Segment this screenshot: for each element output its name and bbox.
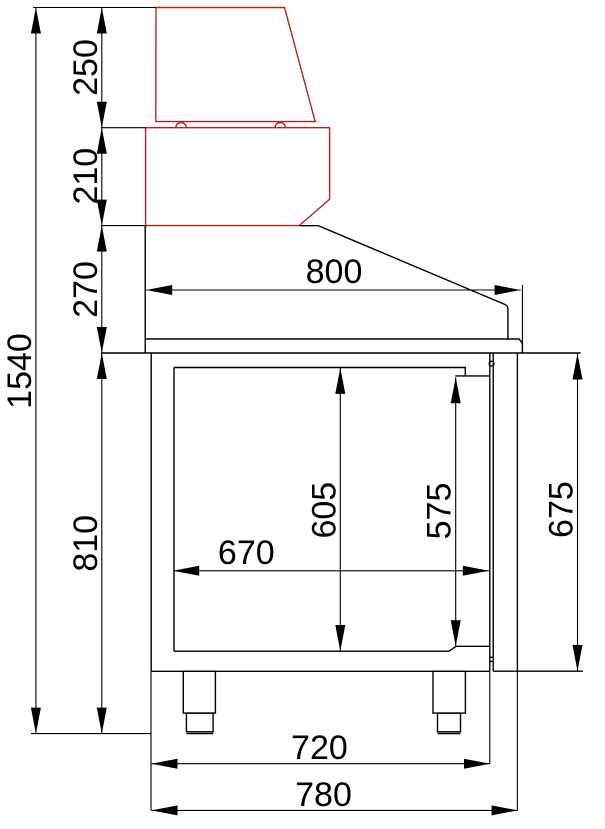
svg-text:250: 250 [67, 39, 105, 96]
svg-text:210: 210 [67, 148, 105, 205]
svg-text:575: 575 [421, 483, 459, 540]
svg-text:605: 605 [305, 482, 343, 539]
svg-text:270: 270 [67, 261, 105, 318]
svg-text:675: 675 [543, 481, 581, 538]
svg-text:670: 670 [218, 534, 275, 572]
svg-text:720: 720 [291, 729, 348, 767]
svg-text:810: 810 [67, 515, 105, 572]
svg-text:1540: 1540 [1, 333, 39, 409]
svg-text:780: 780 [295, 776, 352, 814]
svg-text:800: 800 [306, 253, 363, 291]
